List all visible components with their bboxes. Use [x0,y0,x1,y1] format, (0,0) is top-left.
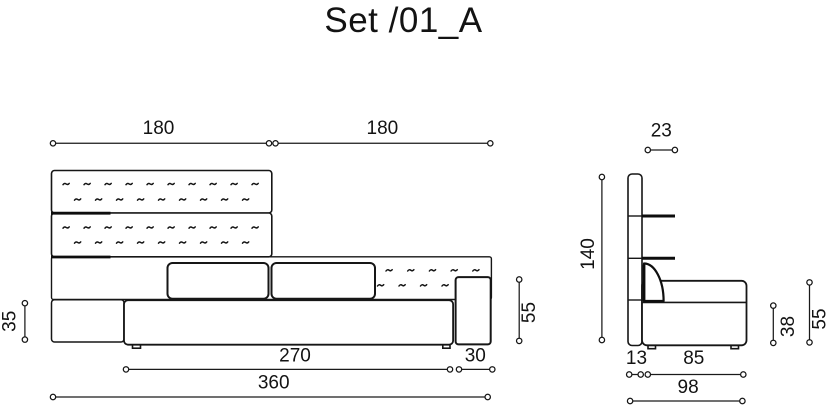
svg-text:35: 35 [0,311,21,332]
svg-text:23: 23 [651,121,672,142]
svg-text:360: 360 [258,373,290,394]
svg-text:180: 180 [143,118,175,139]
svg-text:55: 55 [519,302,540,323]
svg-text:140: 140 [578,238,599,270]
svg-text:55: 55 [810,308,831,329]
svg-text:180: 180 [367,118,399,139]
svg-text:13: 13 [626,348,647,369]
svg-text:30: 30 [465,346,486,367]
svg-text:85: 85 [683,348,704,369]
svg-text:98: 98 [678,377,699,398]
svg-text:270: 270 [279,346,311,367]
svg-text:38: 38 [778,316,799,337]
svg-text:Set /01_A: Set /01_A [324,1,482,40]
